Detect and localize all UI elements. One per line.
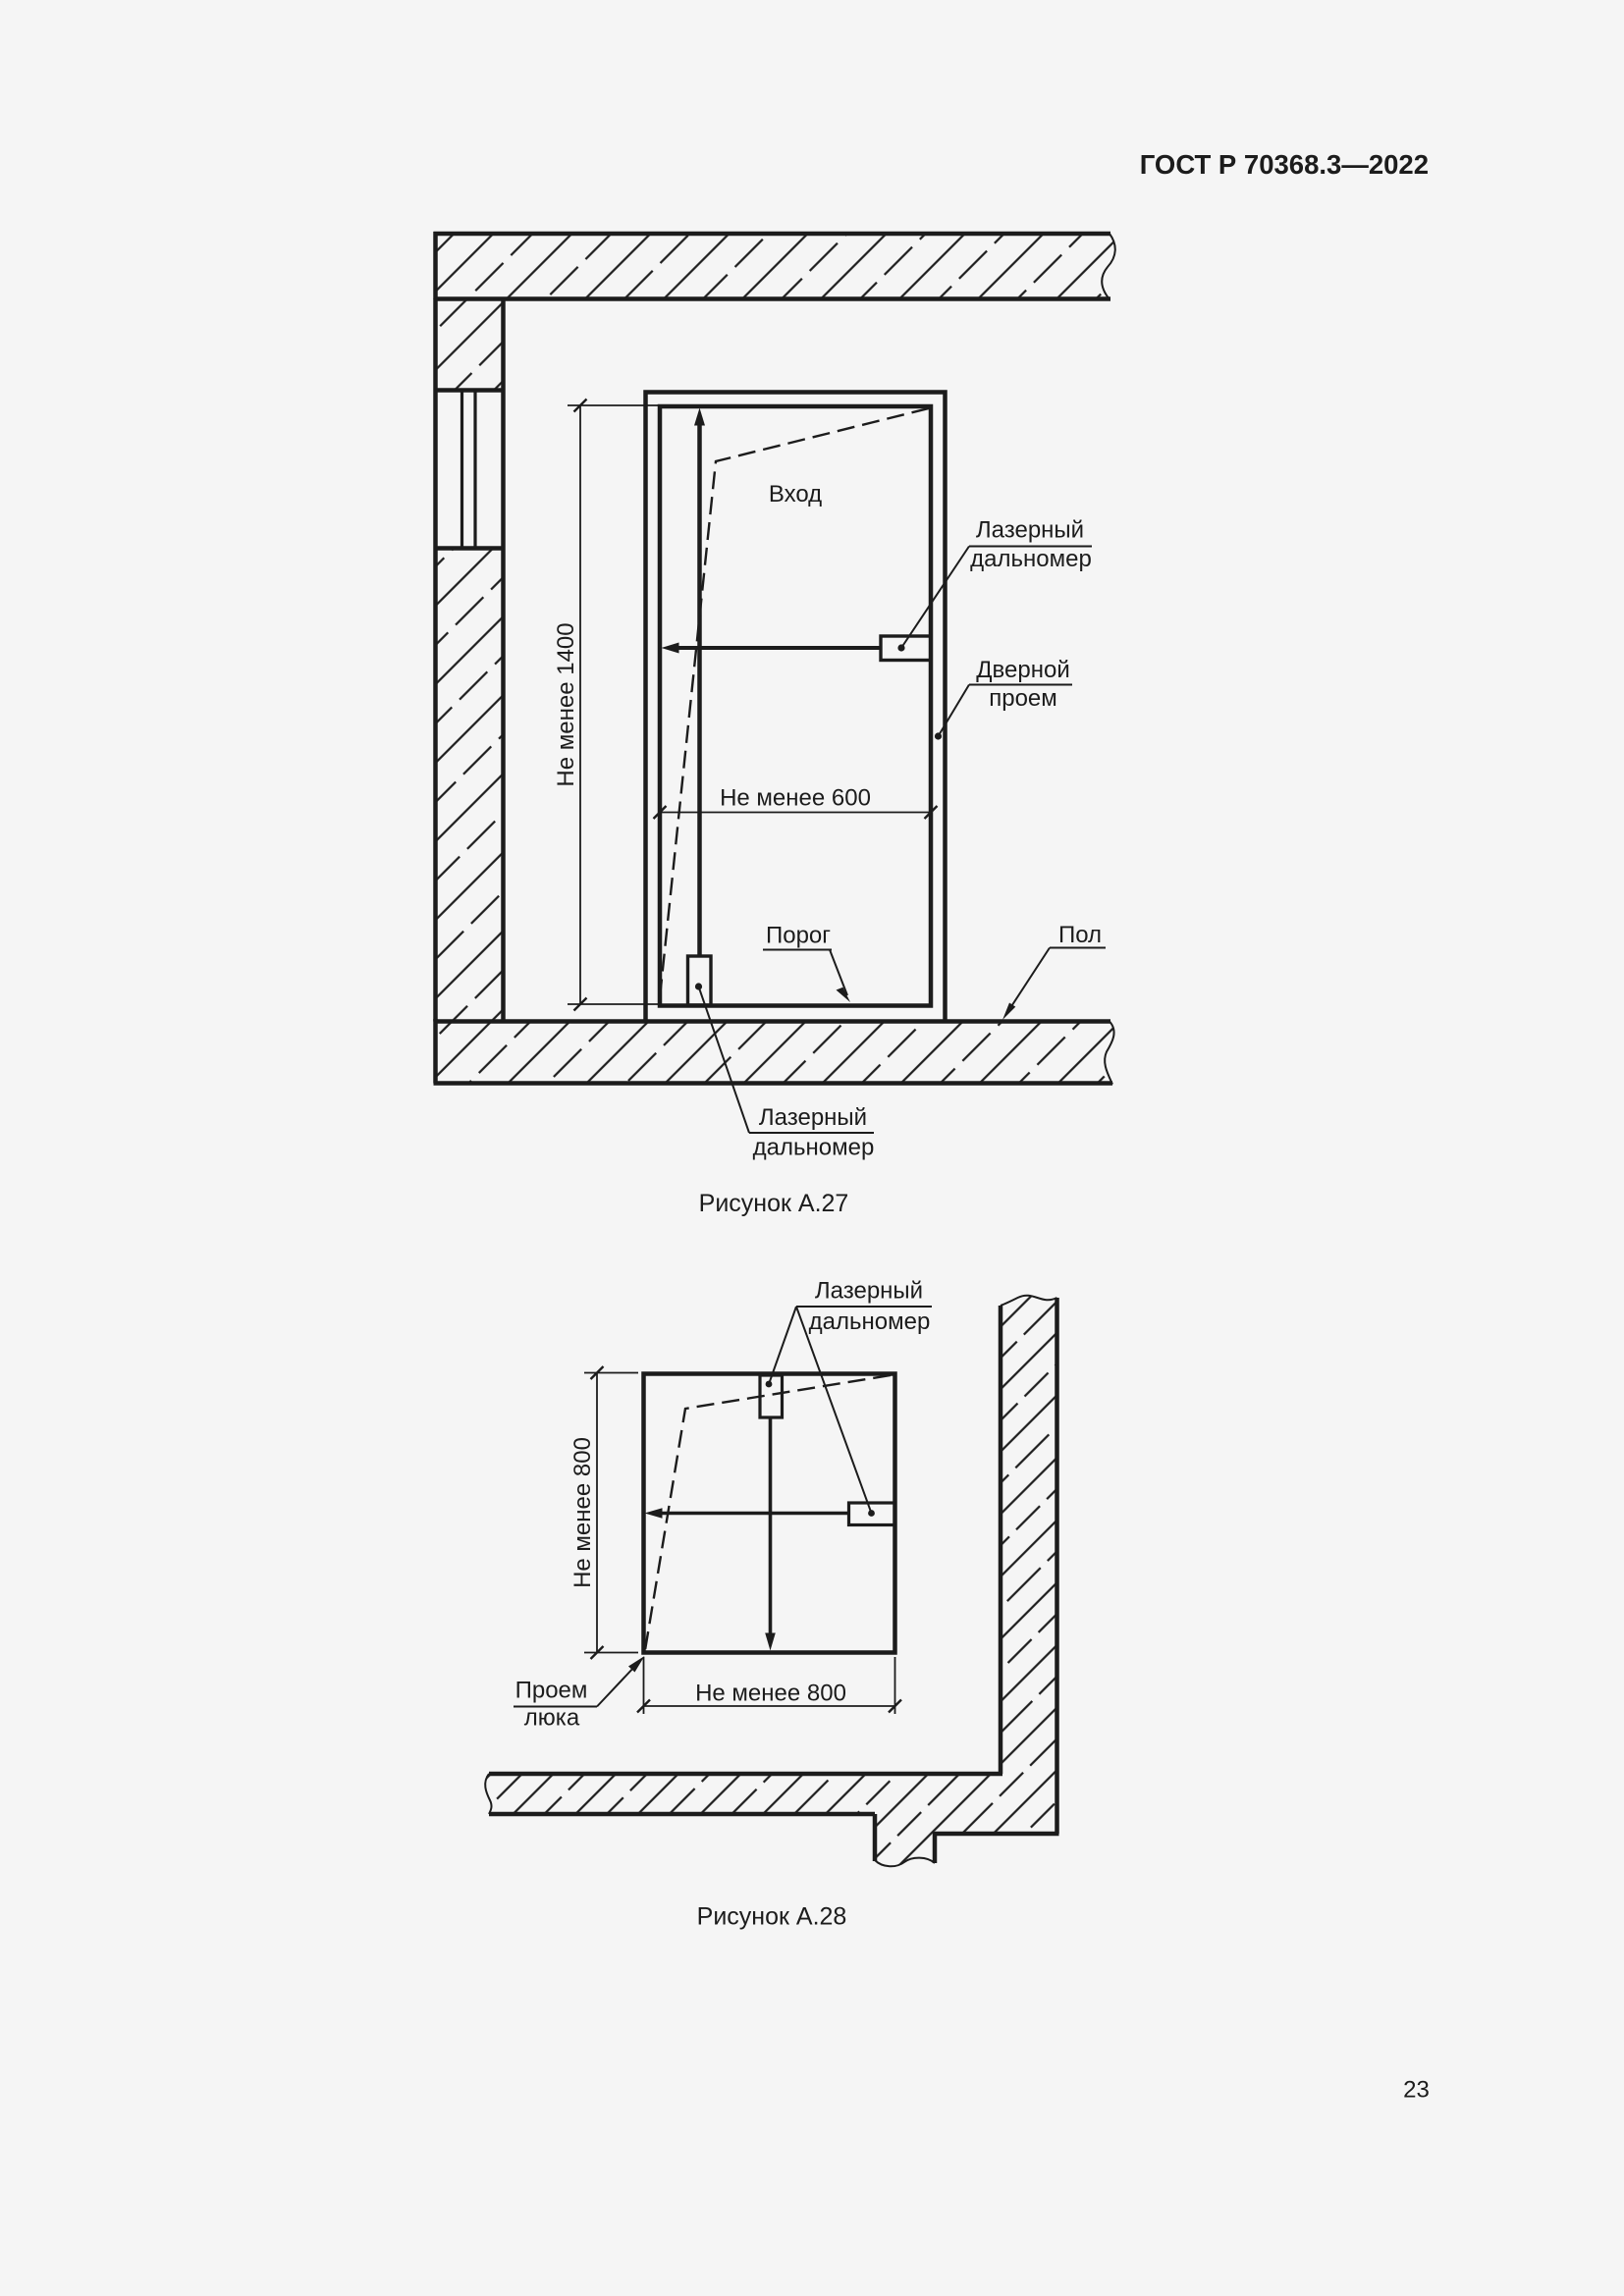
svg-text:Не менее 800: Не менее 800 <box>569 1437 596 1588</box>
svg-text:Лазерный: Лазерный <box>976 517 1084 544</box>
svg-text:Рисунок А.28: Рисунок А.28 <box>697 1903 847 1931</box>
svg-text:дальномер: дальномер <box>809 1308 931 1335</box>
svg-text:Вход: Вход <box>769 481 822 507</box>
svg-text:Пол: Пол <box>1058 922 1102 948</box>
svg-text:Порог: Порог <box>766 923 831 949</box>
svg-text:Проем: Проем <box>515 1678 588 1704</box>
svg-text:Не менее 600: Не менее 600 <box>720 785 871 812</box>
svg-text:Не менее 800: Не менее 800 <box>695 1681 846 1707</box>
svg-text:ГОСТ Р 70368.3—2022: ГОСТ Р 70368.3—2022 <box>1140 149 1429 180</box>
svg-text:проем: проем <box>989 685 1057 712</box>
svg-text:дальномер: дальномер <box>970 546 1092 572</box>
svg-text:дальномер: дальномер <box>753 1135 875 1161</box>
svg-text:Дверной: Дверной <box>976 657 1069 683</box>
svg-text:Рисунок А.27: Рисунок А.27 <box>699 1190 849 1217</box>
svg-text:23: 23 <box>1403 2077 1430 2104</box>
svg-text:люка: люка <box>524 1705 580 1732</box>
svg-text:Лазерный: Лазерный <box>815 1278 923 1305</box>
svg-text:Не менее 1400: Не менее 1400 <box>553 622 579 786</box>
svg-text:Лазерный: Лазерный <box>759 1104 867 1131</box>
